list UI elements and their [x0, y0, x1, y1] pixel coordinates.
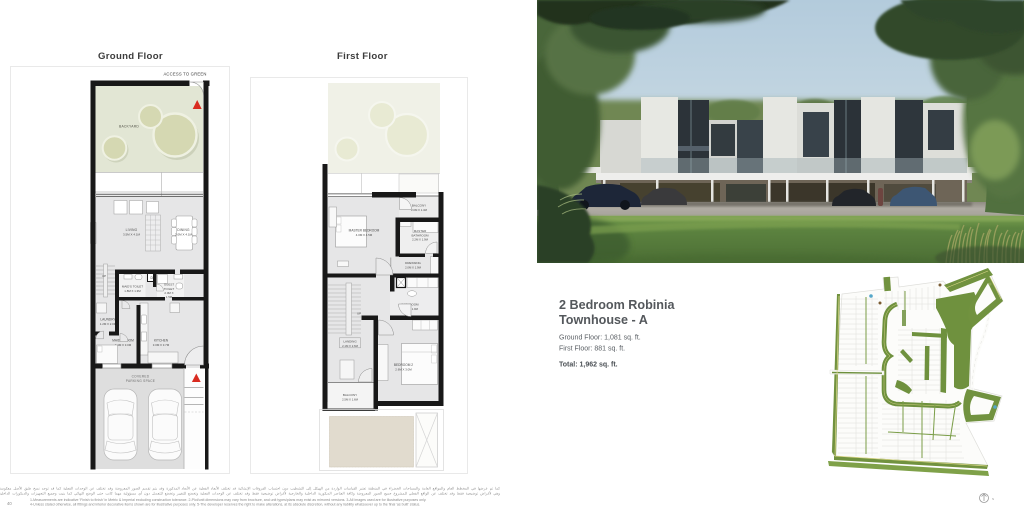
- svg-text:1.8M X 1.3M: 1.8M X 1.3M: [124, 289, 141, 293]
- svg-text:First Floor: 881 sq. ft.: First Floor: 881 sq. ft.: [559, 346, 625, 353]
- svg-text:BEDROOM 2: BEDROOM 2: [394, 363, 413, 367]
- svg-text:3.5M X 4.1M: 3.5M X 4.1M: [123, 233, 141, 237]
- svg-text:LAUNDRY: LAUNDRY: [100, 318, 116, 322]
- svg-text:KITCHEN: KITCHEN: [154, 339, 169, 343]
- svg-text:Ground Floor: 1,081 sq. ft.: Ground Floor: 1,081 sq. ft.: [559, 335, 641, 342]
- svg-text:Townhouse - A: Townhouse - A: [559, 313, 648, 327]
- svg-text:Total: 1,962 sq. ft.: Total: 1,962 sq. ft.: [559, 362, 618, 369]
- svg-text:3.0M X 3.7M: 3.0M X 3.7M: [153, 343, 170, 347]
- svg-text:2 Bedroom Robinia: 2 Bedroom Robinia: [559, 298, 675, 312]
- svg-text:3.0M X 4.1M: 3.0M X 4.1M: [175, 233, 193, 237]
- svg-text:MASTER BEDROOM: MASTER BEDROOM: [349, 229, 380, 233]
- svg-text:BACKYARD: BACKYARD: [119, 125, 139, 129]
- svg-text:PARKING SPACE: PARKING SPACE: [126, 379, 155, 383]
- svg-text:Ground Floor: Ground Floor: [98, 51, 163, 62]
- svg-text:1.5M: 1.5M: [166, 295, 173, 299]
- svg-text:ACCESS TO GREEN: ACCESS TO GREEN: [163, 72, 206, 77]
- svg-text:First Floor: First Floor: [337, 51, 388, 62]
- svg-text:4.0M X 4.5M: 4.0M X 4.5M: [356, 233, 373, 237]
- svg-text:DINING: DINING: [177, 228, 190, 232]
- svg-text:1.2M X 2.0M: 1.2M X 2.0M: [100, 322, 117, 326]
- svg-text:UP: UP: [357, 311, 361, 315]
- svg-text:40: 40: [7, 501, 12, 506]
- svg-text:2.0M X 1.9M: 2.0M X 1.9M: [405, 265, 422, 269]
- svg-text:COVERED: COVERED: [132, 375, 150, 379]
- svg-text:4-Unless stated otherwise, all: 4-Unless stated otherwise, all fittings …: [30, 502, 420, 506]
- svg-text:‫كما تم عرضها في المخطط العام: ‫كما تم عرضها في المخطط العام والمواقع ا…: [0, 485, 500, 492]
- svg-text:2.5M X 1.6M: 2.5M X 1.6M: [342, 397, 359, 401]
- svg-text:2.6M X 3.0M: 2.6M X 3.0M: [395, 368, 412, 372]
- svg-text:‫وهي لأغراض توضيحية فقط وقد تخ: ‫وهي لأغراض توضيحية فقط وقد تختلف عن الو…: [0, 490, 500, 497]
- svg-text:2.0M X 1.4M: 2.0M X 1.4M: [411, 208, 428, 212]
- svg-text:2.2M X 1.9M: 2.2M X 1.9M: [412, 238, 429, 242]
- svg-text:2.1M X 2.6M: 2.1M X 2.6M: [342, 344, 359, 348]
- svg-text:N: N: [992, 497, 994, 501]
- svg-text:LIVING: LIVING: [126, 228, 138, 232]
- svg-text:UP: UP: [102, 274, 106, 278]
